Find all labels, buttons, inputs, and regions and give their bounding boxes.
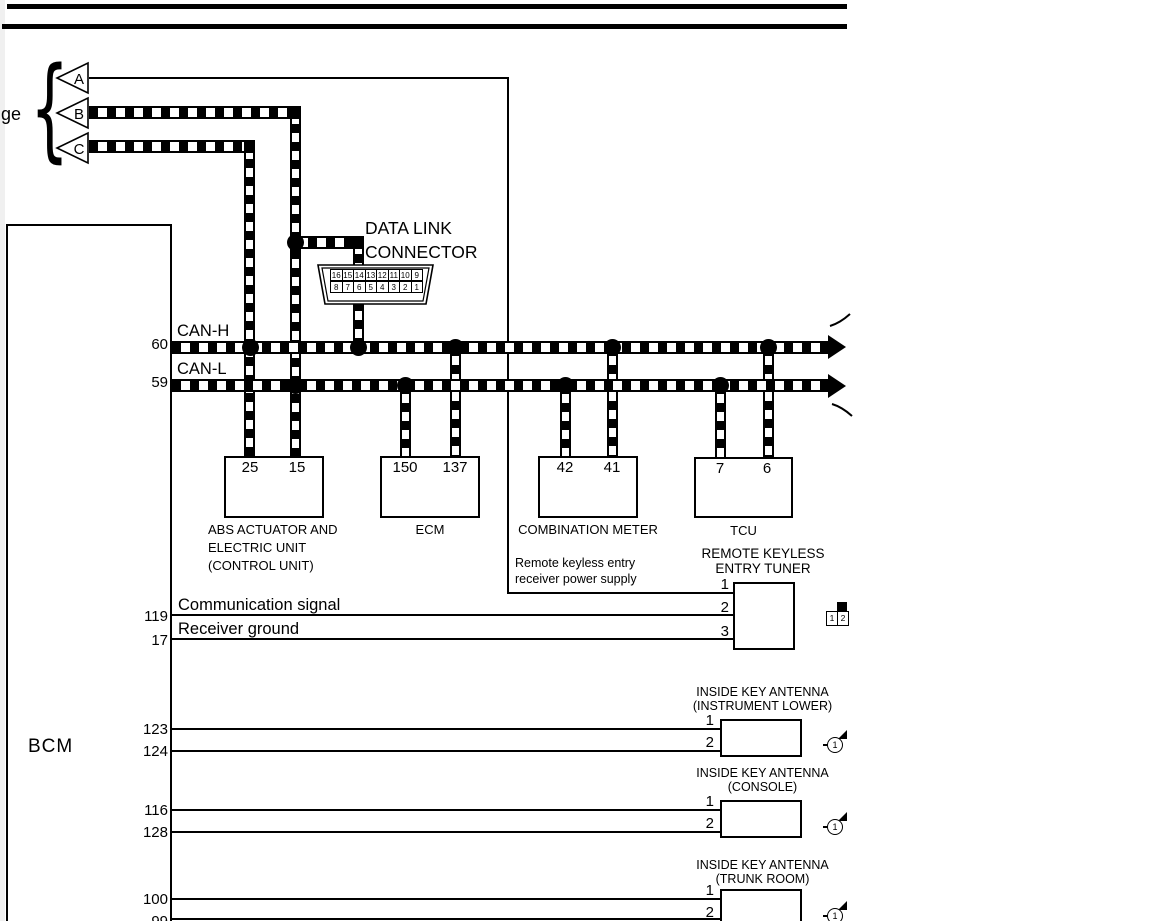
continuation-arc-bottom	[831, 402, 854, 417]
antenna3-wire-1	[172, 898, 720, 900]
wire-tcu-pin7	[715, 385, 726, 457]
ecm-label: ECM	[380, 521, 480, 540]
connector-triangle-a: A	[55, 61, 90, 96]
wire-c-horizontal	[89, 140, 255, 153]
can-h-bus-line	[172, 341, 830, 354]
bcm-label: BCM	[28, 736, 73, 758]
bcm-pin-128: 128	[128, 824, 168, 841]
marker-number: 1	[827, 819, 843, 835]
tuner-title-line1: REMOTE KEYLESS	[693, 546, 833, 562]
wire-b-vertical	[290, 106, 301, 457]
dlc-pin: 11	[389, 269, 401, 281]
wire-meter-pin41	[607, 347, 618, 457]
antenna3-pin-2: 2	[692, 904, 714, 921]
antenna3-pin-1: 1	[692, 882, 714, 899]
tcu-label: TCU	[694, 522, 793, 541]
dlc-pin: 8	[330, 281, 343, 293]
wire-corner	[244, 140, 255, 153]
combination-meter-label: COMBINATION METER	[508, 521, 668, 540]
meter-pin-41: 41	[596, 459, 628, 476]
dlc-pin: 14	[354, 269, 366, 281]
connector-triangle-c: C	[55, 131, 90, 166]
dlc-title-line2: CONNECTOR	[365, 242, 477, 263]
antenna1-wire-1	[172, 728, 720, 730]
dlc-pin: 13	[366, 269, 378, 281]
wire-b-horizontal	[89, 106, 301, 119]
junction-dot	[604, 339, 621, 356]
marker-number: 1	[827, 737, 843, 753]
wiring-diagram-page: ge { A B C	[0, 0, 1152, 921]
abs-pin-15: 15	[281, 459, 313, 476]
can-h-label: CAN-H	[177, 322, 229, 341]
antenna1-pin-2: 2	[692, 734, 714, 751]
wire-corner	[290, 106, 301, 119]
junction-dot	[397, 377, 414, 394]
antenna1-box	[720, 719, 802, 757]
can-h-arrow	[828, 335, 846, 359]
wire-ecm-pin137	[450, 347, 461, 457]
junction-dot	[447, 339, 464, 356]
abs-label-line3: (CONTROL UNIT)	[208, 557, 314, 576]
bcm-pin-124: 124	[128, 743, 168, 760]
bcm-pin-100: 100	[128, 891, 168, 908]
wire-tcu-pin6	[763, 347, 774, 457]
junction-dot	[760, 339, 777, 356]
antenna3-connector-marker: 1	[827, 904, 849, 921]
dlc-pin: 9	[412, 269, 424, 281]
clipped-page-label: ge	[1, 104, 21, 125]
antenna2-wire-1	[172, 809, 720, 811]
triangle-c-label: C	[74, 141, 85, 158]
dlc-pin: 16	[330, 269, 343, 281]
bcm-pin-99: 99	[128, 913, 168, 921]
tcu-pin-7: 7	[704, 460, 736, 477]
antenna2-pin-2: 2	[692, 815, 714, 832]
junction-dot	[712, 377, 729, 394]
abs-label-line1: ABS ACTUATOR AND	[208, 521, 338, 540]
tcu-pin-6: 6	[751, 460, 783, 477]
dlc-pin: 6	[354, 281, 366, 293]
inset-connector-cells: 1 2	[826, 611, 849, 626]
dlc-pin: 1	[412, 281, 424, 293]
inset-pin: 2	[838, 611, 849, 626]
antenna2-connector-marker: 1	[827, 815, 849, 837]
ecm-pin-137: 137	[438, 459, 472, 476]
can-l-label: CAN-L	[177, 360, 227, 379]
dlc-pin: 15	[343, 269, 355, 281]
antenna2-wire-2	[172, 831, 720, 833]
dlc-pin-row-bottom: 8 7 6 5 4 3 2 1	[330, 281, 423, 293]
dlc-pin: 5	[366, 281, 378, 293]
tuner-pin-1: 1	[703, 576, 729, 593]
bcm-pin-116: 116	[128, 802, 168, 819]
marker-number: 1	[827, 908, 843, 921]
wire-corner	[353, 236, 364, 249]
dlc-title-line1: DATA LINK	[365, 218, 452, 239]
can-l-bus-line	[172, 379, 830, 392]
antenna3-box	[720, 889, 802, 921]
dlc-pin: 12	[377, 269, 389, 281]
communication-signal-label: Communication signal	[178, 596, 340, 615]
tuner-power-label-line1: Remote keyless entry	[515, 556, 635, 572]
wire-a-horizontal	[89, 77, 508, 79]
triangle-a-label: A	[74, 71, 84, 88]
bcm-pin-123: 123	[128, 721, 168, 738]
connector-triangle-b: B	[55, 96, 90, 131]
junction-dot	[287, 377, 304, 394]
tuner-title-line2: ENTRY TUNER	[693, 561, 833, 577]
wire-c-vertical	[244, 141, 255, 457]
antenna1-connector-marker: 1	[827, 733, 849, 755]
junction-dot	[350, 339, 367, 356]
tuner-box	[733, 582, 795, 650]
antenna2-pin-1: 1	[692, 793, 714, 810]
receiver-ground-label: Receiver ground	[178, 620, 299, 639]
wire-meter-pin42	[560, 385, 571, 457]
antenna1-wire-2	[172, 750, 720, 752]
abs-pin-25: 25	[234, 459, 266, 476]
page-edge-strip	[0, 0, 5, 921]
header-rule-top	[7, 4, 847, 9]
dlc-pin: 3	[389, 281, 401, 293]
wire-a-vertical	[507, 77, 509, 594]
continuation-arc-top	[829, 313, 852, 328]
wire-tuner-pin1	[507, 592, 735, 594]
dlc-pin: 7	[343, 281, 355, 293]
dlc-pin: 2	[400, 281, 412, 293]
wire-ecm-pin150	[400, 385, 411, 457]
antenna2-box	[720, 800, 802, 838]
meter-pin-42: 42	[549, 459, 581, 476]
junction-dot	[557, 377, 574, 394]
dlc-pin: 10	[400, 269, 412, 281]
tuner-power-label-line2: receiver power supply	[515, 572, 637, 588]
antenna1-pin-1: 1	[692, 712, 714, 729]
triangle-b-label: B	[74, 106, 84, 123]
junction-dot	[242, 339, 259, 356]
ecm-pin-150: 150	[388, 459, 422, 476]
abs-label-line2: ELECTRIC UNIT	[208, 539, 306, 558]
junction-dot	[287, 234, 304, 251]
header-rule-bottom	[2, 24, 847, 29]
can-l-arrow	[828, 374, 846, 398]
inset-pin: 1	[826, 611, 838, 626]
dlc-pin: 4	[377, 281, 389, 293]
dlc-pin-row-top: 16 15 14 13 12 11 10 9	[330, 269, 423, 281]
antenna3-wire-2	[172, 918, 720, 920]
